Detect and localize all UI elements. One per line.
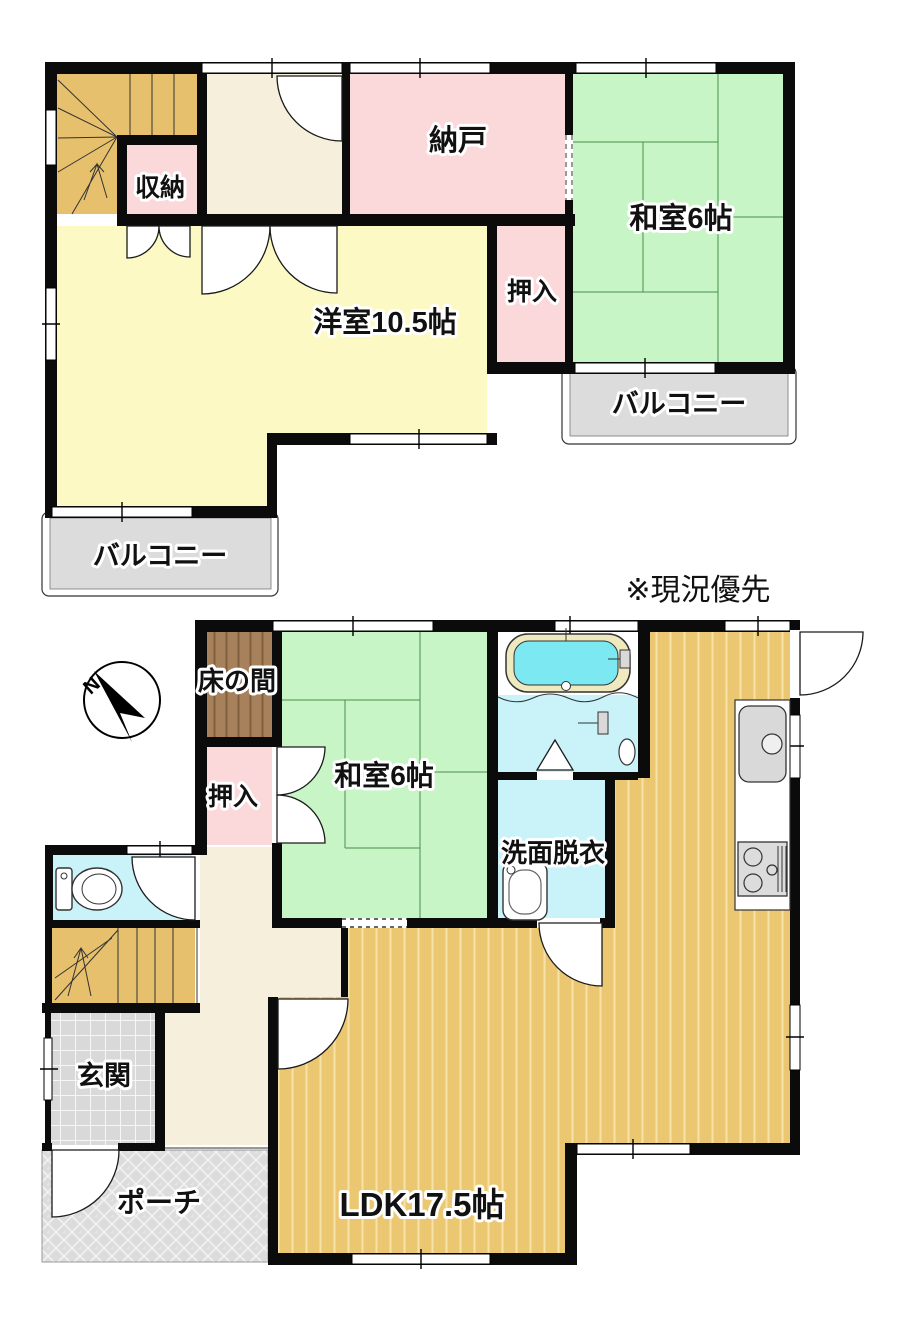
- label-senmen: 洗面脱衣: [501, 838, 605, 868]
- label-ldk: LDK17.5帖: [339, 1186, 504, 1223]
- label-tokonoma: 床の間: [198, 666, 276, 696]
- label-genkan: 玄関: [77, 1060, 131, 1091]
- compass-icon: N: [79, 662, 160, 742]
- label-balcony-west: バルコニー: [93, 541, 227, 571]
- first-floor: N 床の間 押入 和室6帖 洗面脱衣 玄関 ポーチ LDK17.5帖: [40, 616, 863, 1269]
- kitchen-sink-icon: [739, 706, 786, 782]
- label-youshitsu: 洋室10.5帖: [313, 305, 456, 339]
- kitchen-counter: [735, 700, 790, 910]
- note-genkyo-yusen: ※現況優先: [625, 574, 770, 607]
- label-nando: 納戸: [429, 123, 487, 157]
- label-washitsu-2f: 和室6帖: [629, 201, 732, 235]
- floor-plan-canvas: 収納 納戸 和室6帖 押入 洋室10.5帖 バルコニー バルコニー ※現況優先: [0, 0, 905, 1328]
- label-oshiire-2f: 押入: [507, 278, 557, 306]
- label-oshiire-1f: 押入: [208, 783, 258, 811]
- second-floor: 収納 納戸 和室6帖 押入 洋室10.5帖 バルコニー バルコニー: [42, 58, 796, 596]
- label-balcony-east: バルコニー: [612, 389, 746, 419]
- toilet-icon: [56, 868, 122, 910]
- bathtub-icon: [506, 628, 630, 692]
- label-closet-2f: 収納: [135, 173, 185, 202]
- stove-icon: [738, 842, 787, 896]
- floor-plan: 収納 納戸 和室6帖 押入 洋室10.5帖 バルコニー バルコニー ※現況優先: [0, 0, 905, 1328]
- label-porch: ポーチ: [117, 1187, 201, 1218]
- label-washitsu-1f: 和室6帖: [334, 759, 434, 791]
- washing-machine-icon: [503, 862, 547, 920]
